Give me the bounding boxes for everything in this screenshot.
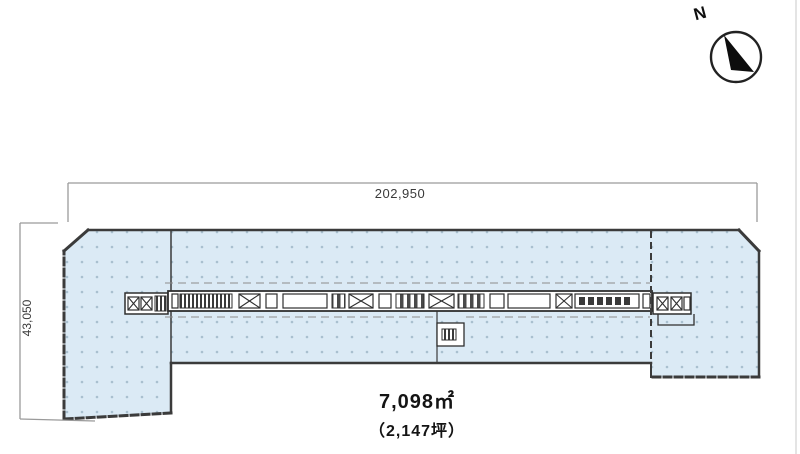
area-tsubo-label: （2,147坪）	[315, 417, 519, 441]
floor-plan-canvas: 202,950 43,050 7,098㎡ （2,147坪） N	[0, 0, 800, 454]
area-annotation: 7,098㎡ （2,147坪）	[315, 385, 519, 441]
scan-edge-artifact	[795, 0, 797, 454]
dimension-top-label: 202,950	[328, 186, 472, 201]
area-sqm-label: 7,098㎡	[315, 385, 519, 414]
north-compass-icon	[711, 32, 761, 82]
dimension-left-label: 43,050	[20, 283, 34, 353]
